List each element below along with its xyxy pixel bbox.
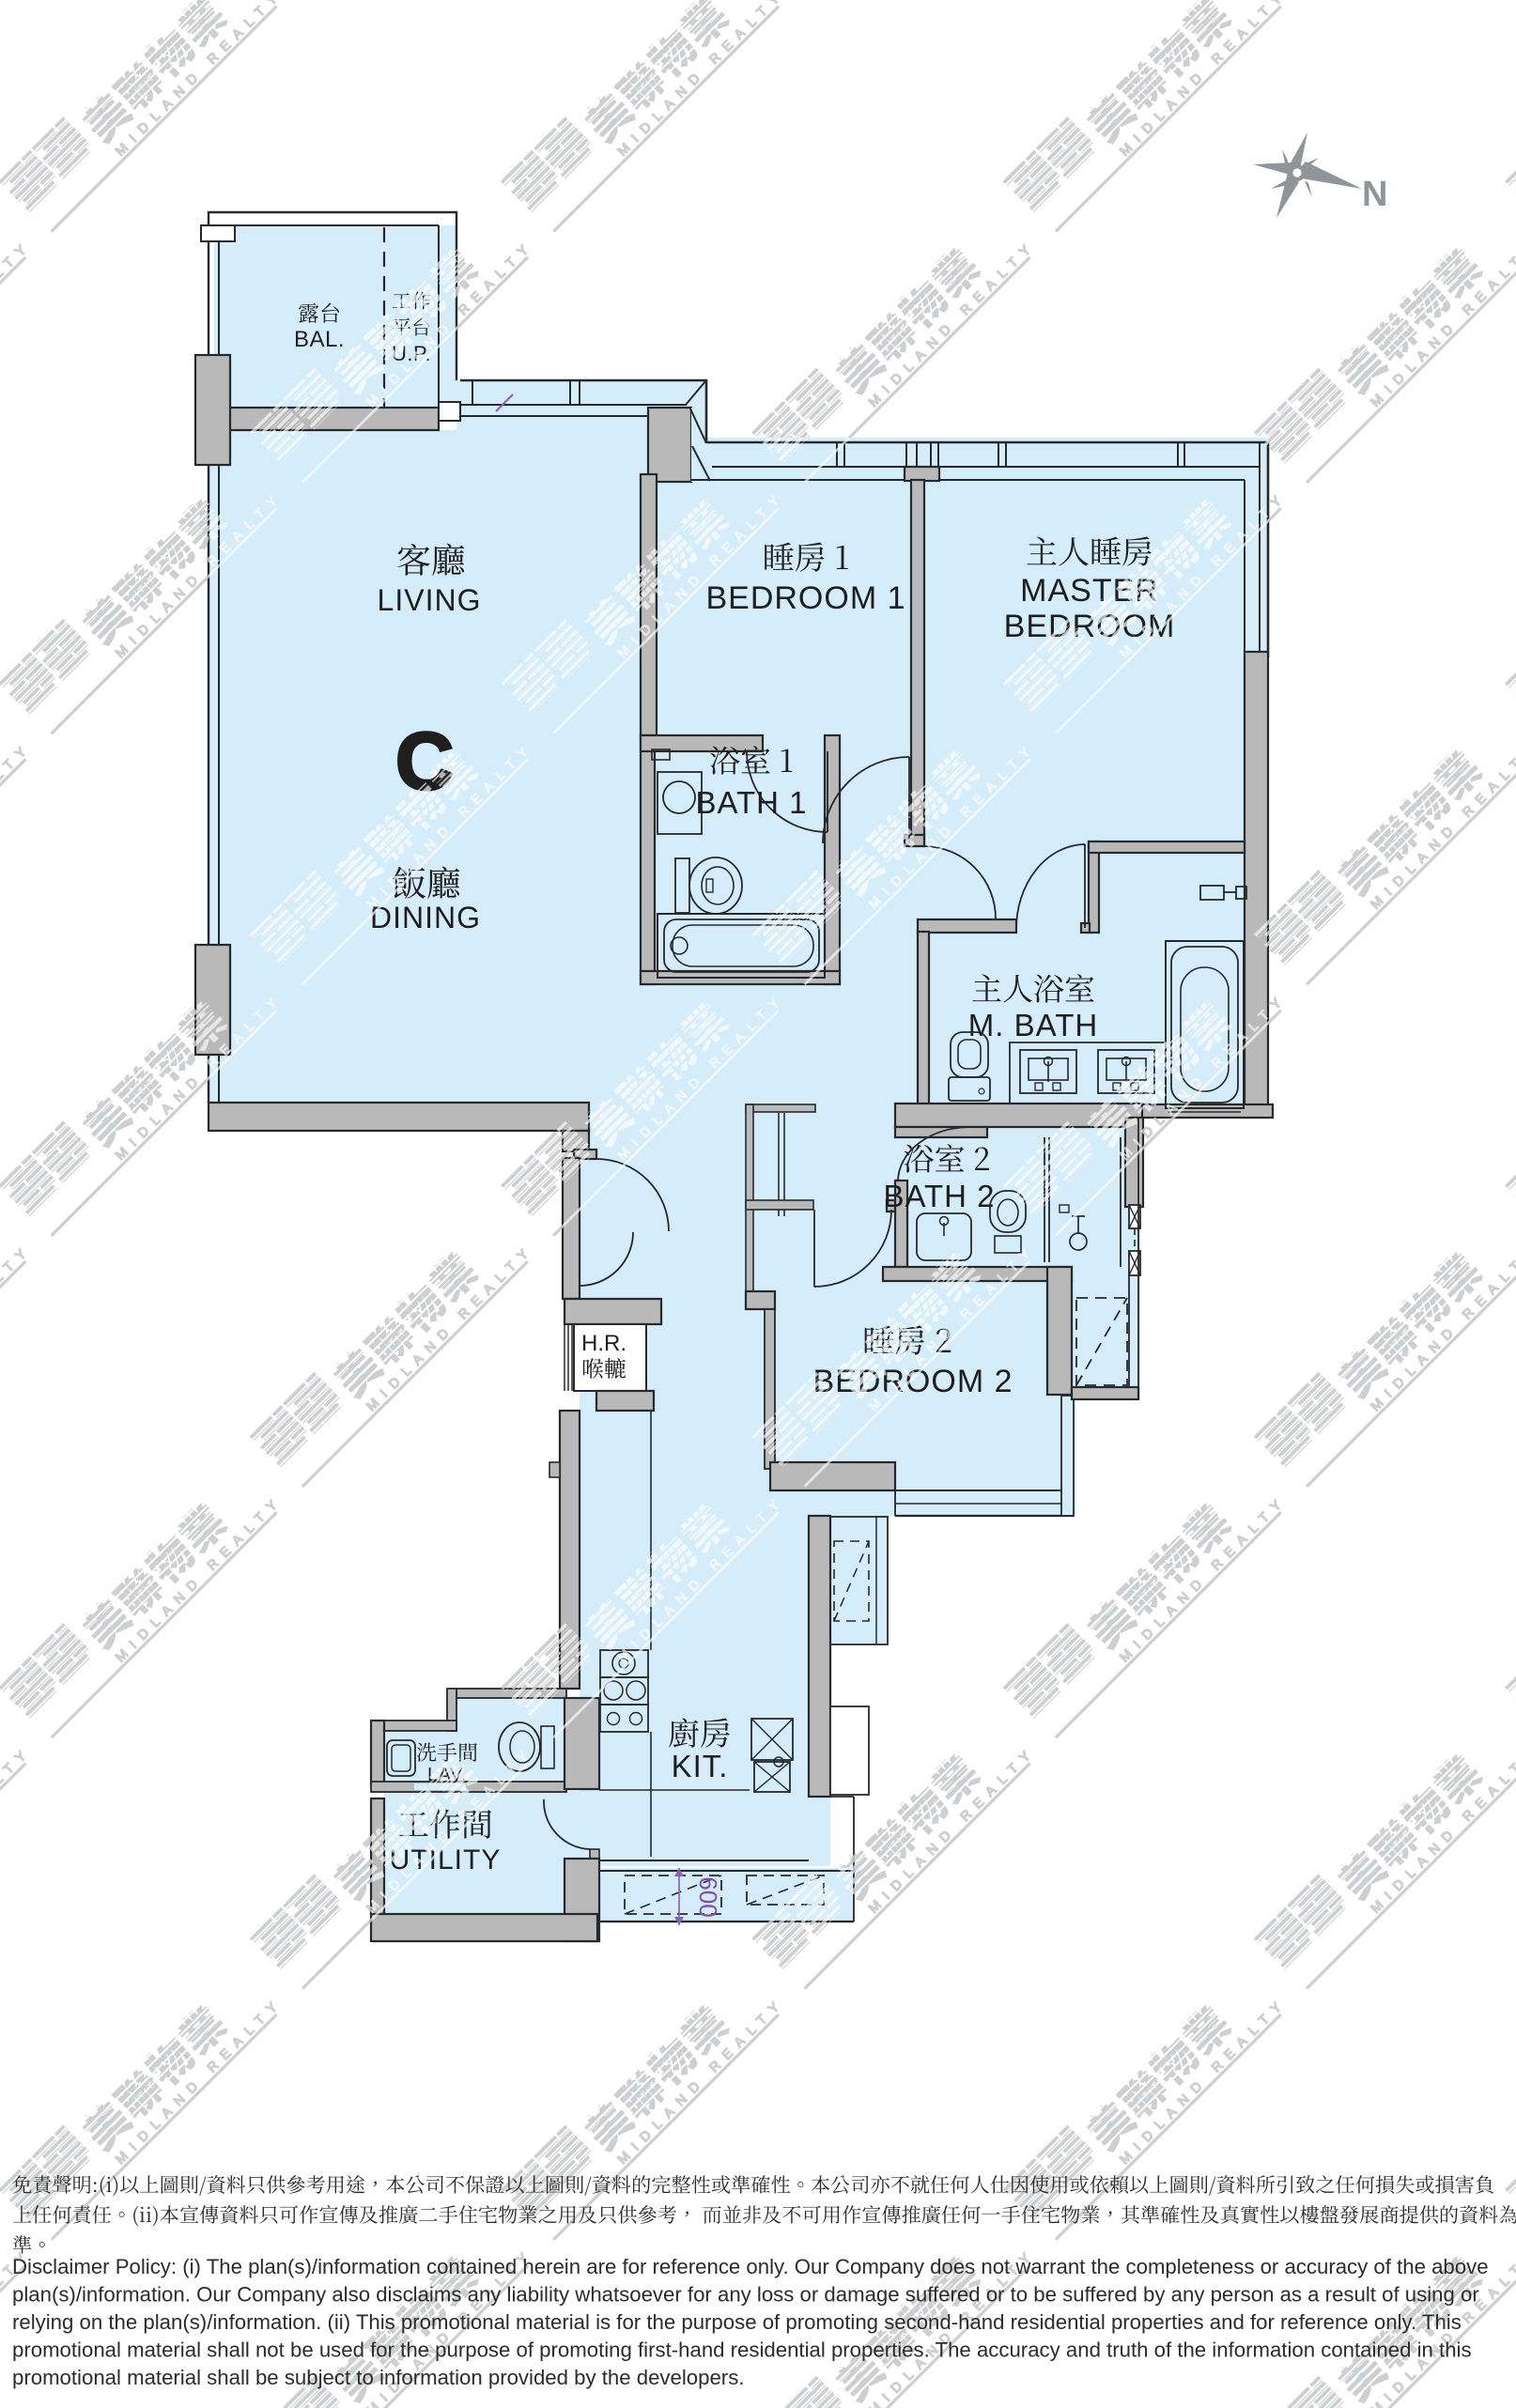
svg-text:promotional material shall not: promotional material shall not be used f… [12,2339,1472,2362]
svg-text:relying on the plan(s)/informa: relying on the plan(s)/information. (ii)… [12,2310,1462,2334]
svg-text:plan(s)/information. Our Compa: plan(s)/information. Our Company also di… [12,2283,1479,2307]
svg-text:Disclaimer Policy: (i) The pla: Disclaimer Policy: (i) The plan(s)/infor… [12,2255,1489,2278]
svg-text:promotional material shall be: promotional material shall be subject to… [12,2366,744,2389]
